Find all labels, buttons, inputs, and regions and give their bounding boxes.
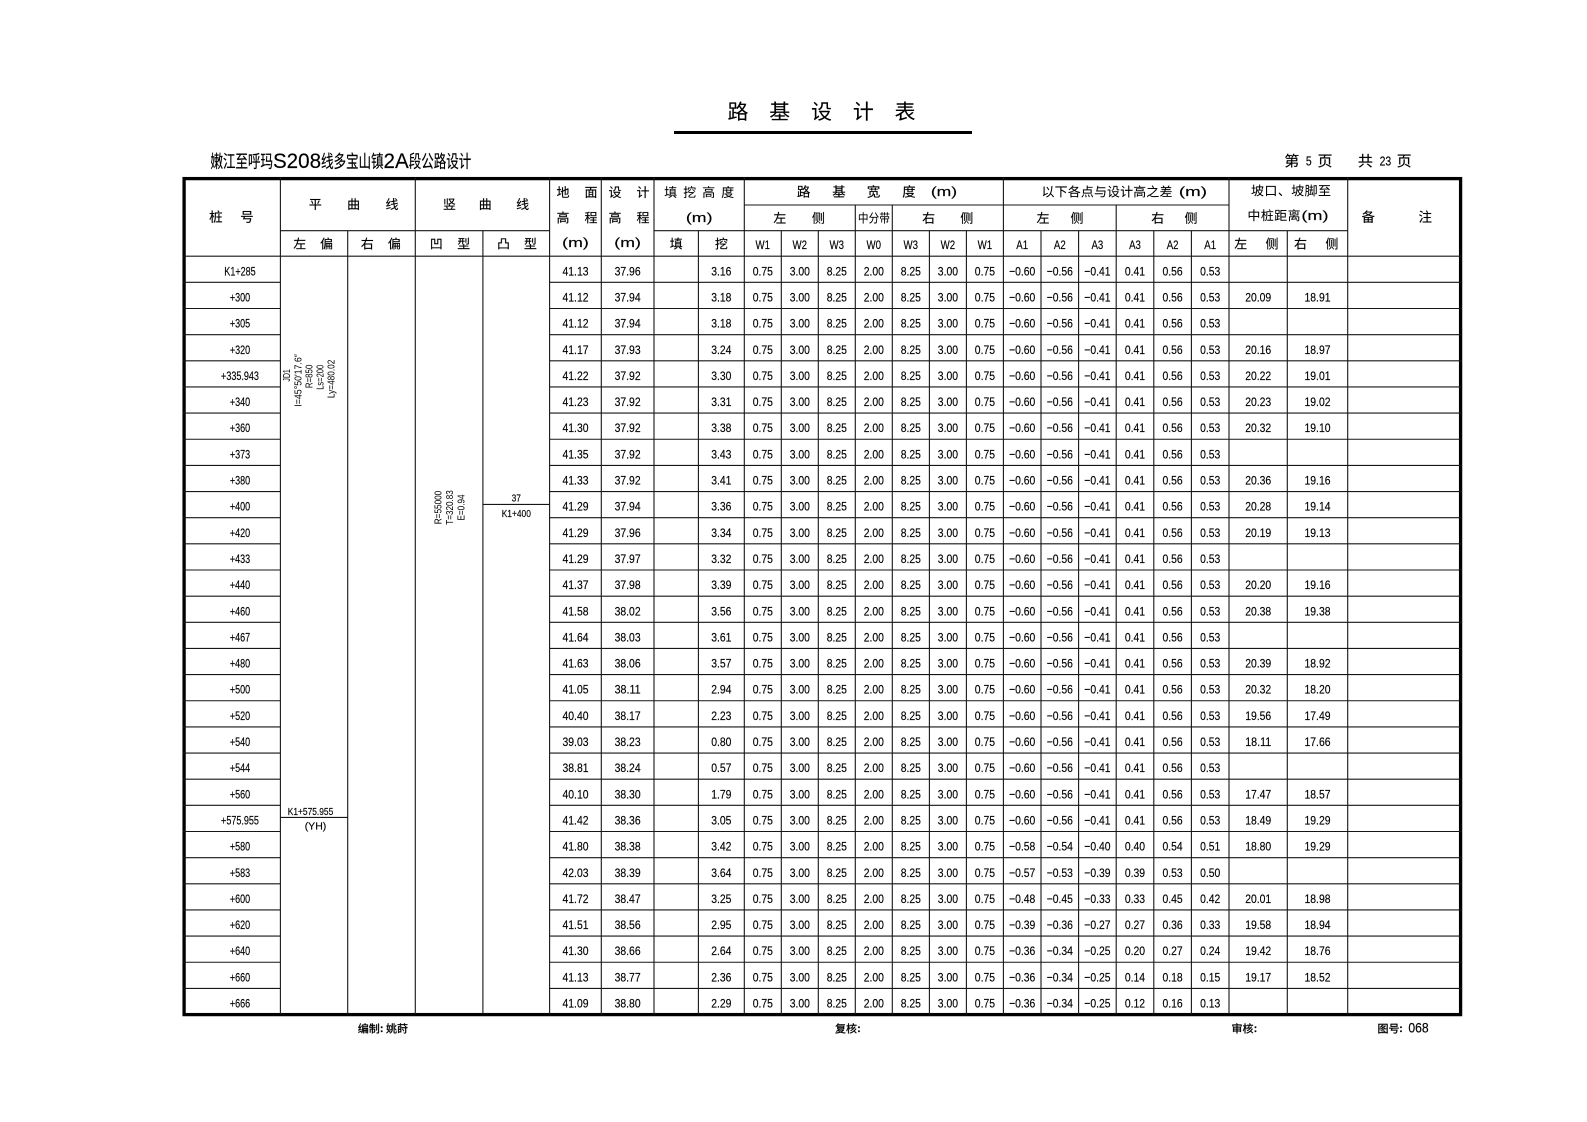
svg-text:0.33: 0.33 <box>1125 892 1145 906</box>
svg-text:8.25: 8.25 <box>827 604 847 618</box>
svg-text:42.03: 42.03 <box>563 866 589 880</box>
svg-text:38.47: 38.47 <box>615 892 641 906</box>
svg-text:3.38: 3.38 <box>711 421 731 435</box>
svg-text:8.25: 8.25 <box>901 447 921 461</box>
svg-text:20.20: 20.20 <box>1245 578 1271 592</box>
svg-text:8.25: 8.25 <box>901 944 921 958</box>
svg-text:2.00: 2.00 <box>864 291 884 305</box>
svg-text:3.56: 3.56 <box>711 604 731 618</box>
svg-text:0.36: 0.36 <box>1163 918 1183 932</box>
svg-text:0.41: 0.41 <box>1125 709 1145 723</box>
svg-text:8.25: 8.25 <box>901 997 921 1011</box>
svg-text:−0.27: −0.27 <box>1084 918 1110 932</box>
svg-text:−0.34: −0.34 <box>1047 944 1073 958</box>
svg-text:0.75: 0.75 <box>975 395 995 409</box>
svg-text:0.75: 0.75 <box>975 447 995 461</box>
svg-text:37.94: 37.94 <box>615 500 641 514</box>
svg-text:+320: +320 <box>230 343 250 357</box>
svg-text:2.00: 2.00 <box>864 447 884 461</box>
svg-text:+460: +460 <box>230 604 250 618</box>
svg-text:−0.56: −0.56 <box>1047 291 1073 305</box>
svg-text:0.41: 0.41 <box>1125 317 1145 331</box>
svg-text:3.18: 3.18 <box>711 291 731 305</box>
svg-text:20.16: 20.16 <box>1245 343 1271 357</box>
svg-text:2.29: 2.29 <box>711 997 731 1011</box>
svg-text:37.93: 37.93 <box>615 343 641 357</box>
svg-text:+420: +420 <box>230 526 250 540</box>
svg-text:19.16: 19.16 <box>1305 578 1331 592</box>
svg-text:3.00: 3.00 <box>938 787 958 801</box>
svg-text:0.41: 0.41 <box>1125 264 1145 278</box>
svg-text:8.25: 8.25 <box>901 657 921 671</box>
svg-text:0.41: 0.41 <box>1125 369 1145 383</box>
svg-text:0.75: 0.75 <box>753 761 773 775</box>
svg-text:0.75: 0.75 <box>753 317 773 331</box>
svg-text:3.00: 3.00 <box>938 447 958 461</box>
svg-text:−0.41: −0.41 <box>1084 787 1110 801</box>
svg-text:0.80: 0.80 <box>711 735 731 749</box>
svg-text:−0.60: −0.60 <box>1009 447 1035 461</box>
svg-text:0.53: 0.53 <box>1200 709 1220 723</box>
svg-text:23: 23 <box>1380 154 1392 169</box>
svg-text:0.14: 0.14 <box>1125 970 1145 984</box>
svg-text:−0.56: −0.56 <box>1047 395 1073 409</box>
svg-text:41.72: 41.72 <box>563 892 589 906</box>
svg-text:3.00: 3.00 <box>790 918 810 932</box>
svg-text:0.75: 0.75 <box>753 604 773 618</box>
svg-text:2.23: 2.23 <box>711 709 731 723</box>
svg-text:41.17: 41.17 <box>563 343 589 357</box>
svg-text:−0.60: −0.60 <box>1009 421 1035 435</box>
svg-text:38.36: 38.36 <box>615 814 641 828</box>
svg-text:−0.60: −0.60 <box>1009 735 1035 749</box>
svg-text:0.53: 0.53 <box>1200 683 1220 697</box>
svg-text:2.00: 2.00 <box>864 997 884 1011</box>
svg-text:−0.56: −0.56 <box>1047 526 1073 540</box>
svg-text:8.25: 8.25 <box>827 291 847 305</box>
svg-text:0.53: 0.53 <box>1200 343 1220 357</box>
svg-text:−0.56: −0.56 <box>1047 474 1073 488</box>
svg-text:2.64: 2.64 <box>711 944 731 958</box>
svg-text:3.00: 3.00 <box>938 709 958 723</box>
svg-text:0.41: 0.41 <box>1125 657 1145 671</box>
svg-text:8.25: 8.25 <box>827 918 847 932</box>
svg-text:+467: +467 <box>230 630 250 644</box>
svg-text:0.27: 0.27 <box>1163 944 1183 958</box>
svg-text:−0.41: −0.41 <box>1084 735 1110 749</box>
svg-text:2.00: 2.00 <box>864 892 884 906</box>
svg-text:0.75: 0.75 <box>975 317 995 331</box>
svg-text:3.00: 3.00 <box>938 526 958 540</box>
svg-text:19.56: 19.56 <box>1245 709 1271 723</box>
svg-text:20.23: 20.23 <box>1245 395 1271 409</box>
svg-text:38.77: 38.77 <box>615 970 641 984</box>
svg-text:0.53: 0.53 <box>1200 317 1220 331</box>
svg-text:−0.57: −0.57 <box>1009 866 1035 880</box>
svg-text:0.75: 0.75 <box>975 892 995 906</box>
svg-text:2.94: 2.94 <box>711 683 731 697</box>
svg-text:2.00: 2.00 <box>864 918 884 932</box>
svg-text:−0.25: −0.25 <box>1084 970 1110 984</box>
svg-text:38.17: 38.17 <box>615 709 641 723</box>
svg-text:0.53: 0.53 <box>1200 630 1220 644</box>
svg-text:18.97: 18.97 <box>1305 343 1331 357</box>
svg-text:3.00: 3.00 <box>938 500 958 514</box>
svg-text:3.00: 3.00 <box>790 840 810 854</box>
svg-text:0.56: 0.56 <box>1163 291 1183 305</box>
svg-text:38.03: 38.03 <box>615 630 641 644</box>
svg-text:3.00: 3.00 <box>790 630 810 644</box>
svg-text:41.09: 41.09 <box>563 997 589 1011</box>
svg-text:3.36: 3.36 <box>711 500 731 514</box>
svg-text:−0.60: −0.60 <box>1009 552 1035 566</box>
svg-text:3.00: 3.00 <box>938 369 958 383</box>
svg-text:3.00: 3.00 <box>938 970 958 984</box>
svg-text:3.00: 3.00 <box>938 395 958 409</box>
svg-text:19.29: 19.29 <box>1305 814 1331 828</box>
svg-text:0.75: 0.75 <box>753 970 773 984</box>
svg-text:−0.60: −0.60 <box>1009 683 1035 697</box>
svg-text:T=320.83: T=320.83 <box>444 490 456 525</box>
svg-text:−0.56: −0.56 <box>1047 735 1073 749</box>
svg-text:+335.943: +335.943 <box>221 369 259 383</box>
svg-text:20.22: 20.22 <box>1245 369 1271 383</box>
svg-text:3.00: 3.00 <box>790 604 810 618</box>
svg-text:41.35: 41.35 <box>563 447 589 461</box>
svg-text:0.53: 0.53 <box>1200 578 1220 592</box>
svg-text:41.80: 41.80 <box>563 840 589 854</box>
svg-text:2.00: 2.00 <box>864 500 884 514</box>
svg-text:19.02: 19.02 <box>1305 395 1331 409</box>
svg-text:(m): (m) <box>614 236 641 250</box>
svg-text:−0.41: −0.41 <box>1084 395 1110 409</box>
svg-text:0.75: 0.75 <box>975 500 995 514</box>
svg-text:3.00: 3.00 <box>938 604 958 618</box>
svg-text:−0.60: −0.60 <box>1009 343 1035 357</box>
svg-text:068: 068 <box>1408 1021 1428 1036</box>
svg-text:R=55000: R=55000 <box>433 491 445 525</box>
svg-text:−0.41: −0.41 <box>1084 500 1110 514</box>
svg-text:0.45: 0.45 <box>1163 892 1183 906</box>
svg-text:0.75: 0.75 <box>753 630 773 644</box>
svg-text:8.25: 8.25 <box>901 970 921 984</box>
svg-text:0.41: 0.41 <box>1125 343 1145 357</box>
svg-text:0.56: 0.56 <box>1163 604 1183 618</box>
svg-text:+575.955: +575.955 <box>221 814 259 828</box>
svg-text:0.41: 0.41 <box>1125 500 1145 514</box>
svg-text:18.57: 18.57 <box>1305 787 1331 801</box>
svg-text:0.56: 0.56 <box>1163 735 1183 749</box>
svg-text:3.42: 3.42 <box>711 840 731 854</box>
svg-text:0.75: 0.75 <box>753 787 773 801</box>
svg-text:8.25: 8.25 <box>827 970 847 984</box>
svg-text:41.29: 41.29 <box>563 526 589 540</box>
svg-text:−0.41: −0.41 <box>1084 421 1110 435</box>
svg-text:2.00: 2.00 <box>864 343 884 357</box>
svg-text:3.00: 3.00 <box>790 474 810 488</box>
svg-text:−0.56: −0.56 <box>1047 552 1073 566</box>
svg-text:−0.56: −0.56 <box>1047 604 1073 618</box>
svg-text:37.94: 37.94 <box>615 291 641 305</box>
svg-text:8.25: 8.25 <box>827 526 847 540</box>
svg-text:0.53: 0.53 <box>1200 657 1220 671</box>
svg-text:2.95: 2.95 <box>711 918 731 932</box>
svg-text:−0.34: −0.34 <box>1047 970 1073 984</box>
svg-text:−0.25: −0.25 <box>1084 997 1110 1011</box>
svg-text:0.56: 0.56 <box>1163 761 1183 775</box>
svg-text:(m): (m) <box>562 236 589 250</box>
svg-text:0.33: 0.33 <box>1200 918 1220 932</box>
svg-text:18.94: 18.94 <box>1305 918 1331 932</box>
svg-text:3.00: 3.00 <box>938 683 958 697</box>
svg-text:2.00: 2.00 <box>864 683 884 697</box>
svg-text:0.75: 0.75 <box>753 709 773 723</box>
svg-text:0.18: 0.18 <box>1163 970 1183 984</box>
svg-text:3.34: 3.34 <box>711 526 731 540</box>
svg-text:+660: +660 <box>230 970 250 984</box>
svg-text:0.75: 0.75 <box>753 421 773 435</box>
svg-text:18.92: 18.92 <box>1305 657 1331 671</box>
svg-text:3.16: 3.16 <box>711 264 731 278</box>
svg-text:+433: +433 <box>230 552 250 566</box>
svg-text:A2: A2 <box>1054 238 1066 252</box>
svg-text:8.25: 8.25 <box>901 500 921 514</box>
svg-text:−0.41: −0.41 <box>1084 474 1110 488</box>
svg-text:−0.41: −0.41 <box>1084 604 1110 618</box>
svg-text:3.00: 3.00 <box>790 317 810 331</box>
svg-text:39.03: 39.03 <box>563 735 589 749</box>
svg-text:8.25: 8.25 <box>827 735 847 749</box>
svg-text:−0.45: −0.45 <box>1047 892 1073 906</box>
svg-text:−0.60: −0.60 <box>1009 814 1035 828</box>
svg-text:41.23: 41.23 <box>563 395 589 409</box>
svg-text:0.39: 0.39 <box>1125 866 1145 880</box>
svg-text:0.56: 0.56 <box>1163 683 1183 697</box>
svg-text:3.00: 3.00 <box>938 944 958 958</box>
svg-text:0.75: 0.75 <box>753 918 773 932</box>
svg-text:0.24: 0.24 <box>1200 944 1220 958</box>
svg-text:−0.54: −0.54 <box>1047 840 1073 854</box>
svg-text:2.00: 2.00 <box>864 970 884 984</box>
svg-text:−0.56: −0.56 <box>1047 630 1073 644</box>
svg-text:0.56: 0.56 <box>1163 630 1183 644</box>
svg-text:41.12: 41.12 <box>563 317 589 331</box>
svg-text:41.37: 41.37 <box>563 578 589 592</box>
svg-text:2.00: 2.00 <box>864 526 884 540</box>
svg-text:(YH): (YH) <box>305 820 327 832</box>
svg-text:38.24: 38.24 <box>615 761 641 775</box>
svg-text:41.29: 41.29 <box>563 500 589 514</box>
svg-text:−0.41: −0.41 <box>1084 578 1110 592</box>
svg-text:0.75: 0.75 <box>753 735 773 749</box>
svg-text:8.25: 8.25 <box>827 892 847 906</box>
svg-text:20.38: 20.38 <box>1245 604 1271 618</box>
svg-text:0.41: 0.41 <box>1125 683 1145 697</box>
svg-text:8.25: 8.25 <box>827 500 847 514</box>
svg-text:3.00: 3.00 <box>790 291 810 305</box>
svg-text:A1: A1 <box>1204 238 1216 252</box>
svg-text:8.25: 8.25 <box>901 552 921 566</box>
svg-text:0.75: 0.75 <box>975 264 995 278</box>
svg-text:8.25: 8.25 <box>901 526 921 540</box>
svg-text:3.00: 3.00 <box>790 264 810 278</box>
svg-text:−0.56: −0.56 <box>1047 657 1073 671</box>
svg-text:38.80: 38.80 <box>615 997 641 1011</box>
svg-text:3.00: 3.00 <box>938 264 958 278</box>
svg-text:0.53: 0.53 <box>1200 761 1220 775</box>
svg-text:20.01: 20.01 <box>1245 892 1271 906</box>
svg-text::: : <box>857 1023 861 1035</box>
svg-text:−0.60: −0.60 <box>1009 291 1035 305</box>
svg-text:20.39: 20.39 <box>1245 657 1271 671</box>
svg-text:0.75: 0.75 <box>753 657 773 671</box>
svg-text:W1: W1 <box>756 238 771 252</box>
svg-text:0.75: 0.75 <box>753 683 773 697</box>
svg-text:Ly=480.02: Ly=480.02 <box>326 360 338 399</box>
svg-text:17.49: 17.49 <box>1305 709 1331 723</box>
svg-text:−0.41: −0.41 <box>1084 630 1110 644</box>
svg-text:0.75: 0.75 <box>753 578 773 592</box>
svg-text:0.56: 0.56 <box>1163 421 1183 435</box>
svg-text:18.80: 18.80 <box>1245 840 1271 854</box>
svg-text:+500: +500 <box>230 683 250 697</box>
svg-text:3.00: 3.00 <box>938 421 958 435</box>
svg-text:0.41: 0.41 <box>1125 552 1145 566</box>
svg-text:37: 37 <box>512 493 521 505</box>
svg-text:0.75: 0.75 <box>753 291 773 305</box>
svg-text:0.41: 0.41 <box>1125 578 1145 592</box>
svg-text:38.30: 38.30 <box>615 787 641 801</box>
svg-text:−0.56: −0.56 <box>1047 787 1073 801</box>
svg-text:−0.41: −0.41 <box>1084 343 1110 357</box>
svg-text:+666: +666 <box>230 997 250 1011</box>
svg-text:−0.39: −0.39 <box>1084 866 1110 880</box>
svg-text:8.25: 8.25 <box>901 369 921 383</box>
svg-text:41.51: 41.51 <box>563 918 589 932</box>
svg-text:0.53: 0.53 <box>1200 421 1220 435</box>
svg-text:(m): (m) <box>1301 209 1328 223</box>
svg-text:37.97: 37.97 <box>615 552 641 566</box>
svg-text:0.56: 0.56 <box>1163 657 1183 671</box>
svg-text:3.00: 3.00 <box>938 840 958 854</box>
svg-text:20.28: 20.28 <box>1245 500 1271 514</box>
svg-text:0.12: 0.12 <box>1125 997 1145 1011</box>
svg-text:8.25: 8.25 <box>827 761 847 775</box>
svg-text:3.18: 3.18 <box>711 317 731 331</box>
svg-text:8.25: 8.25 <box>827 814 847 828</box>
svg-text:−0.56: −0.56 <box>1047 317 1073 331</box>
svg-text:0.75: 0.75 <box>753 866 773 880</box>
svg-text:0.75: 0.75 <box>975 630 995 644</box>
svg-text:0.75: 0.75 <box>975 683 995 697</box>
svg-text:38.02: 38.02 <box>615 604 641 618</box>
svg-text:−0.56: −0.56 <box>1047 343 1073 357</box>
svg-text:18.49: 18.49 <box>1245 814 1271 828</box>
svg-text:0.75: 0.75 <box>975 657 995 671</box>
svg-text:8.25: 8.25 <box>827 787 847 801</box>
svg-text:0.41: 0.41 <box>1125 814 1145 828</box>
svg-text:2.00: 2.00 <box>864 421 884 435</box>
svg-text:−0.36: −0.36 <box>1009 944 1035 958</box>
svg-text:8.25: 8.25 <box>901 787 921 801</box>
svg-text:3.00: 3.00 <box>938 291 958 305</box>
svg-text::: : <box>1399 1023 1403 1035</box>
svg-text:20.32: 20.32 <box>1245 421 1271 435</box>
svg-text:8.25: 8.25 <box>901 578 921 592</box>
svg-text:W3: W3 <box>904 238 919 252</box>
svg-text:0.75: 0.75 <box>975 840 995 854</box>
svg-text:0.75: 0.75 <box>975 552 995 566</box>
svg-text:8.25: 8.25 <box>827 709 847 723</box>
svg-text:3.00: 3.00 <box>790 997 810 1011</box>
svg-text:K1+285: K1+285 <box>224 264 256 278</box>
svg-text:−0.36: −0.36 <box>1047 918 1073 932</box>
svg-text:−0.34: −0.34 <box>1047 997 1073 1011</box>
svg-text:0.41: 0.41 <box>1125 395 1145 409</box>
svg-text:3.00: 3.00 <box>790 500 810 514</box>
svg-text:S208: S208 <box>273 150 321 173</box>
svg-text:A3: A3 <box>1092 238 1104 252</box>
svg-text:−0.40: −0.40 <box>1084 840 1110 854</box>
svg-text:0.75: 0.75 <box>975 735 995 749</box>
svg-text:−0.41: −0.41 <box>1084 447 1110 461</box>
svg-text:20.19: 20.19 <box>1245 526 1271 540</box>
svg-text:8.25: 8.25 <box>901 343 921 357</box>
svg-text:8.25: 8.25 <box>901 264 921 278</box>
svg-text:0.75: 0.75 <box>975 709 995 723</box>
svg-text:−0.56: −0.56 <box>1047 447 1073 461</box>
svg-text:0.56: 0.56 <box>1163 474 1183 488</box>
svg-text:3.00: 3.00 <box>790 814 810 828</box>
svg-text:8.25: 8.25 <box>827 447 847 461</box>
svg-text:18.76: 18.76 <box>1305 944 1331 958</box>
svg-text:A3: A3 <box>1129 238 1141 252</box>
svg-text:19.29: 19.29 <box>1305 840 1331 854</box>
svg-text:+583: +583 <box>230 866 250 880</box>
svg-text:0.75: 0.75 <box>753 526 773 540</box>
svg-text:3.00: 3.00 <box>790 447 810 461</box>
svg-text:0.56: 0.56 <box>1163 552 1183 566</box>
svg-text:−0.60: −0.60 <box>1009 500 1035 514</box>
svg-text:JD1: JD1 <box>281 369 293 382</box>
svg-text:0.75: 0.75 <box>975 970 995 984</box>
svg-text:0.75: 0.75 <box>975 918 995 932</box>
svg-text:0.53: 0.53 <box>1200 814 1220 828</box>
svg-text:8.25: 8.25 <box>827 578 847 592</box>
svg-text:0.75: 0.75 <box>975 526 995 540</box>
svg-text:−0.41: −0.41 <box>1084 264 1110 278</box>
svg-text:−0.36: −0.36 <box>1009 997 1035 1011</box>
svg-text:2.00: 2.00 <box>864 735 884 749</box>
svg-text:K1+575.955: K1+575.955 <box>288 806 334 818</box>
svg-text:−0.56: −0.56 <box>1047 578 1073 592</box>
svg-text:2.00: 2.00 <box>864 866 884 880</box>
svg-text:0.16: 0.16 <box>1163 997 1183 1011</box>
svg-text:18.98: 18.98 <box>1305 892 1331 906</box>
svg-text:20.32: 20.32 <box>1245 683 1271 697</box>
svg-text:38.66: 38.66 <box>615 944 641 958</box>
svg-text:8.25: 8.25 <box>901 630 921 644</box>
svg-text:8.25: 8.25 <box>901 421 921 435</box>
svg-text:3.00: 3.00 <box>938 474 958 488</box>
svg-text:3.32: 3.32 <box>711 552 731 566</box>
svg-text:3.00: 3.00 <box>938 343 958 357</box>
svg-text:+300: +300 <box>230 291 250 305</box>
svg-text:−0.41: −0.41 <box>1084 317 1110 331</box>
svg-text:−0.56: −0.56 <box>1047 683 1073 697</box>
svg-text:E=0.94: E=0.94 <box>456 494 468 520</box>
svg-text:3.31: 3.31 <box>711 395 731 409</box>
